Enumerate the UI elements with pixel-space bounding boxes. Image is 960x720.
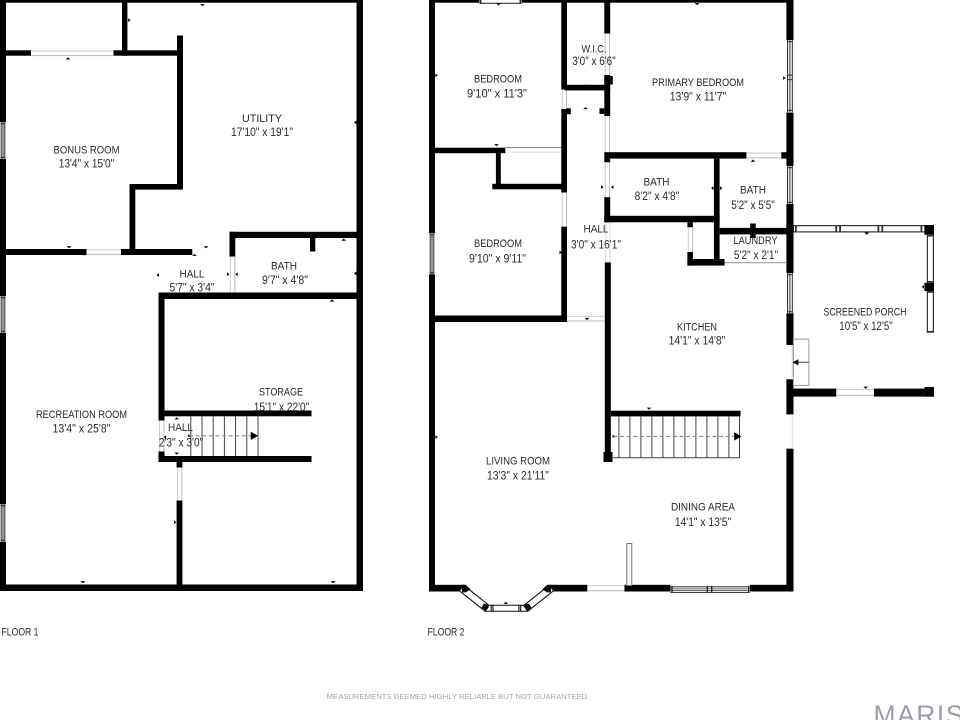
svg-text:FLOOR 1: FLOOR 1 — [2, 627, 39, 639]
svg-text:LAUNDRY: LAUNDRY — [734, 235, 778, 247]
svg-text:13'4" x 15'0": 13'4" x 15'0" — [59, 157, 115, 171]
svg-text:BATH: BATH — [740, 184, 766, 196]
svg-text:BATH: BATH — [271, 260, 297, 272]
svg-text:BEDROOM: BEDROOM — [474, 73, 522, 85]
svg-text:UTILITY: UTILITY — [242, 113, 282, 125]
svg-text:MEASUREMENTS DEEMED HIGHLY REL: MEASUREMENTS DEEMED HIGHLY RELIABLE BUT … — [327, 692, 590, 701]
svg-text:17'10" x 19'1": 17'10" x 19'1" — [231, 125, 293, 139]
svg-text:9'10" x 9'11": 9'10" x 9'11" — [469, 252, 526, 266]
svg-text:MARIS: MARIS — [874, 700, 960, 720]
svg-text:HALL: HALL — [168, 422, 193, 434]
svg-text:15'1" x 22'0": 15'1" x 22'0" — [254, 400, 310, 414]
svg-text:5'2" x 2'1": 5'2" x 2'1" — [734, 248, 778, 262]
svg-text:5'2" x 5'5": 5'2" x 5'5" — [731, 198, 775, 212]
svg-text:8'2" x 4'8": 8'2" x 4'8" — [635, 189, 680, 203]
svg-text:13'4" x 25'8": 13'4" x 25'8" — [53, 422, 111, 436]
svg-text:3'0" x 6'6": 3'0" x 6'6" — [572, 54, 616, 68]
svg-text:BATH: BATH — [644, 176, 670, 188]
svg-text:14'1" x 13'5": 14'1" x 13'5" — [675, 515, 731, 529]
svg-text:10'5" x 12'5": 10'5" x 12'5" — [839, 319, 892, 333]
svg-text:RECREATION ROOM: RECREATION ROOM — [36, 409, 127, 421]
svg-text:9'10" x 11'3": 9'10" x 11'3" — [467, 87, 527, 101]
svg-text:HALL: HALL — [584, 224, 609, 236]
svg-text:5'7" x 3'4": 5'7" x 3'4" — [170, 280, 215, 294]
svg-text:BONUS ROOM: BONUS ROOM — [54, 145, 120, 157]
svg-text:2'3" x 3'0": 2'3" x 3'0" — [159, 435, 204, 449]
svg-text:DINING AREA: DINING AREA — [671, 501, 735, 513]
svg-text:3'0" x 16'1": 3'0" x 16'1" — [571, 237, 621, 251]
svg-text:HALL: HALL — [180, 268, 205, 280]
svg-text:KITCHEN: KITCHEN — [677, 321, 717, 333]
svg-text:13'9" x 11'7": 13'9" x 11'7" — [670, 90, 727, 104]
svg-text:13'3" x 21'11": 13'3" x 21'11" — [487, 469, 549, 483]
svg-text:9'7" x 4'8": 9'7" x 4'8" — [262, 273, 308, 287]
svg-text:LIVING ROOM: LIVING ROOM — [486, 455, 550, 467]
svg-text:SCREENED PORCH: SCREENED PORCH — [824, 306, 907, 318]
svg-text:PRIMARY BEDROOM: PRIMARY BEDROOM — [652, 77, 744, 89]
svg-text:FLOOR 2: FLOOR 2 — [428, 627, 465, 639]
svg-text:BEDROOM: BEDROOM — [474, 238, 522, 250]
svg-text:STORAGE: STORAGE — [259, 386, 303, 398]
svg-text:14'1" x 14'8": 14'1" x 14'8" — [669, 333, 726, 347]
